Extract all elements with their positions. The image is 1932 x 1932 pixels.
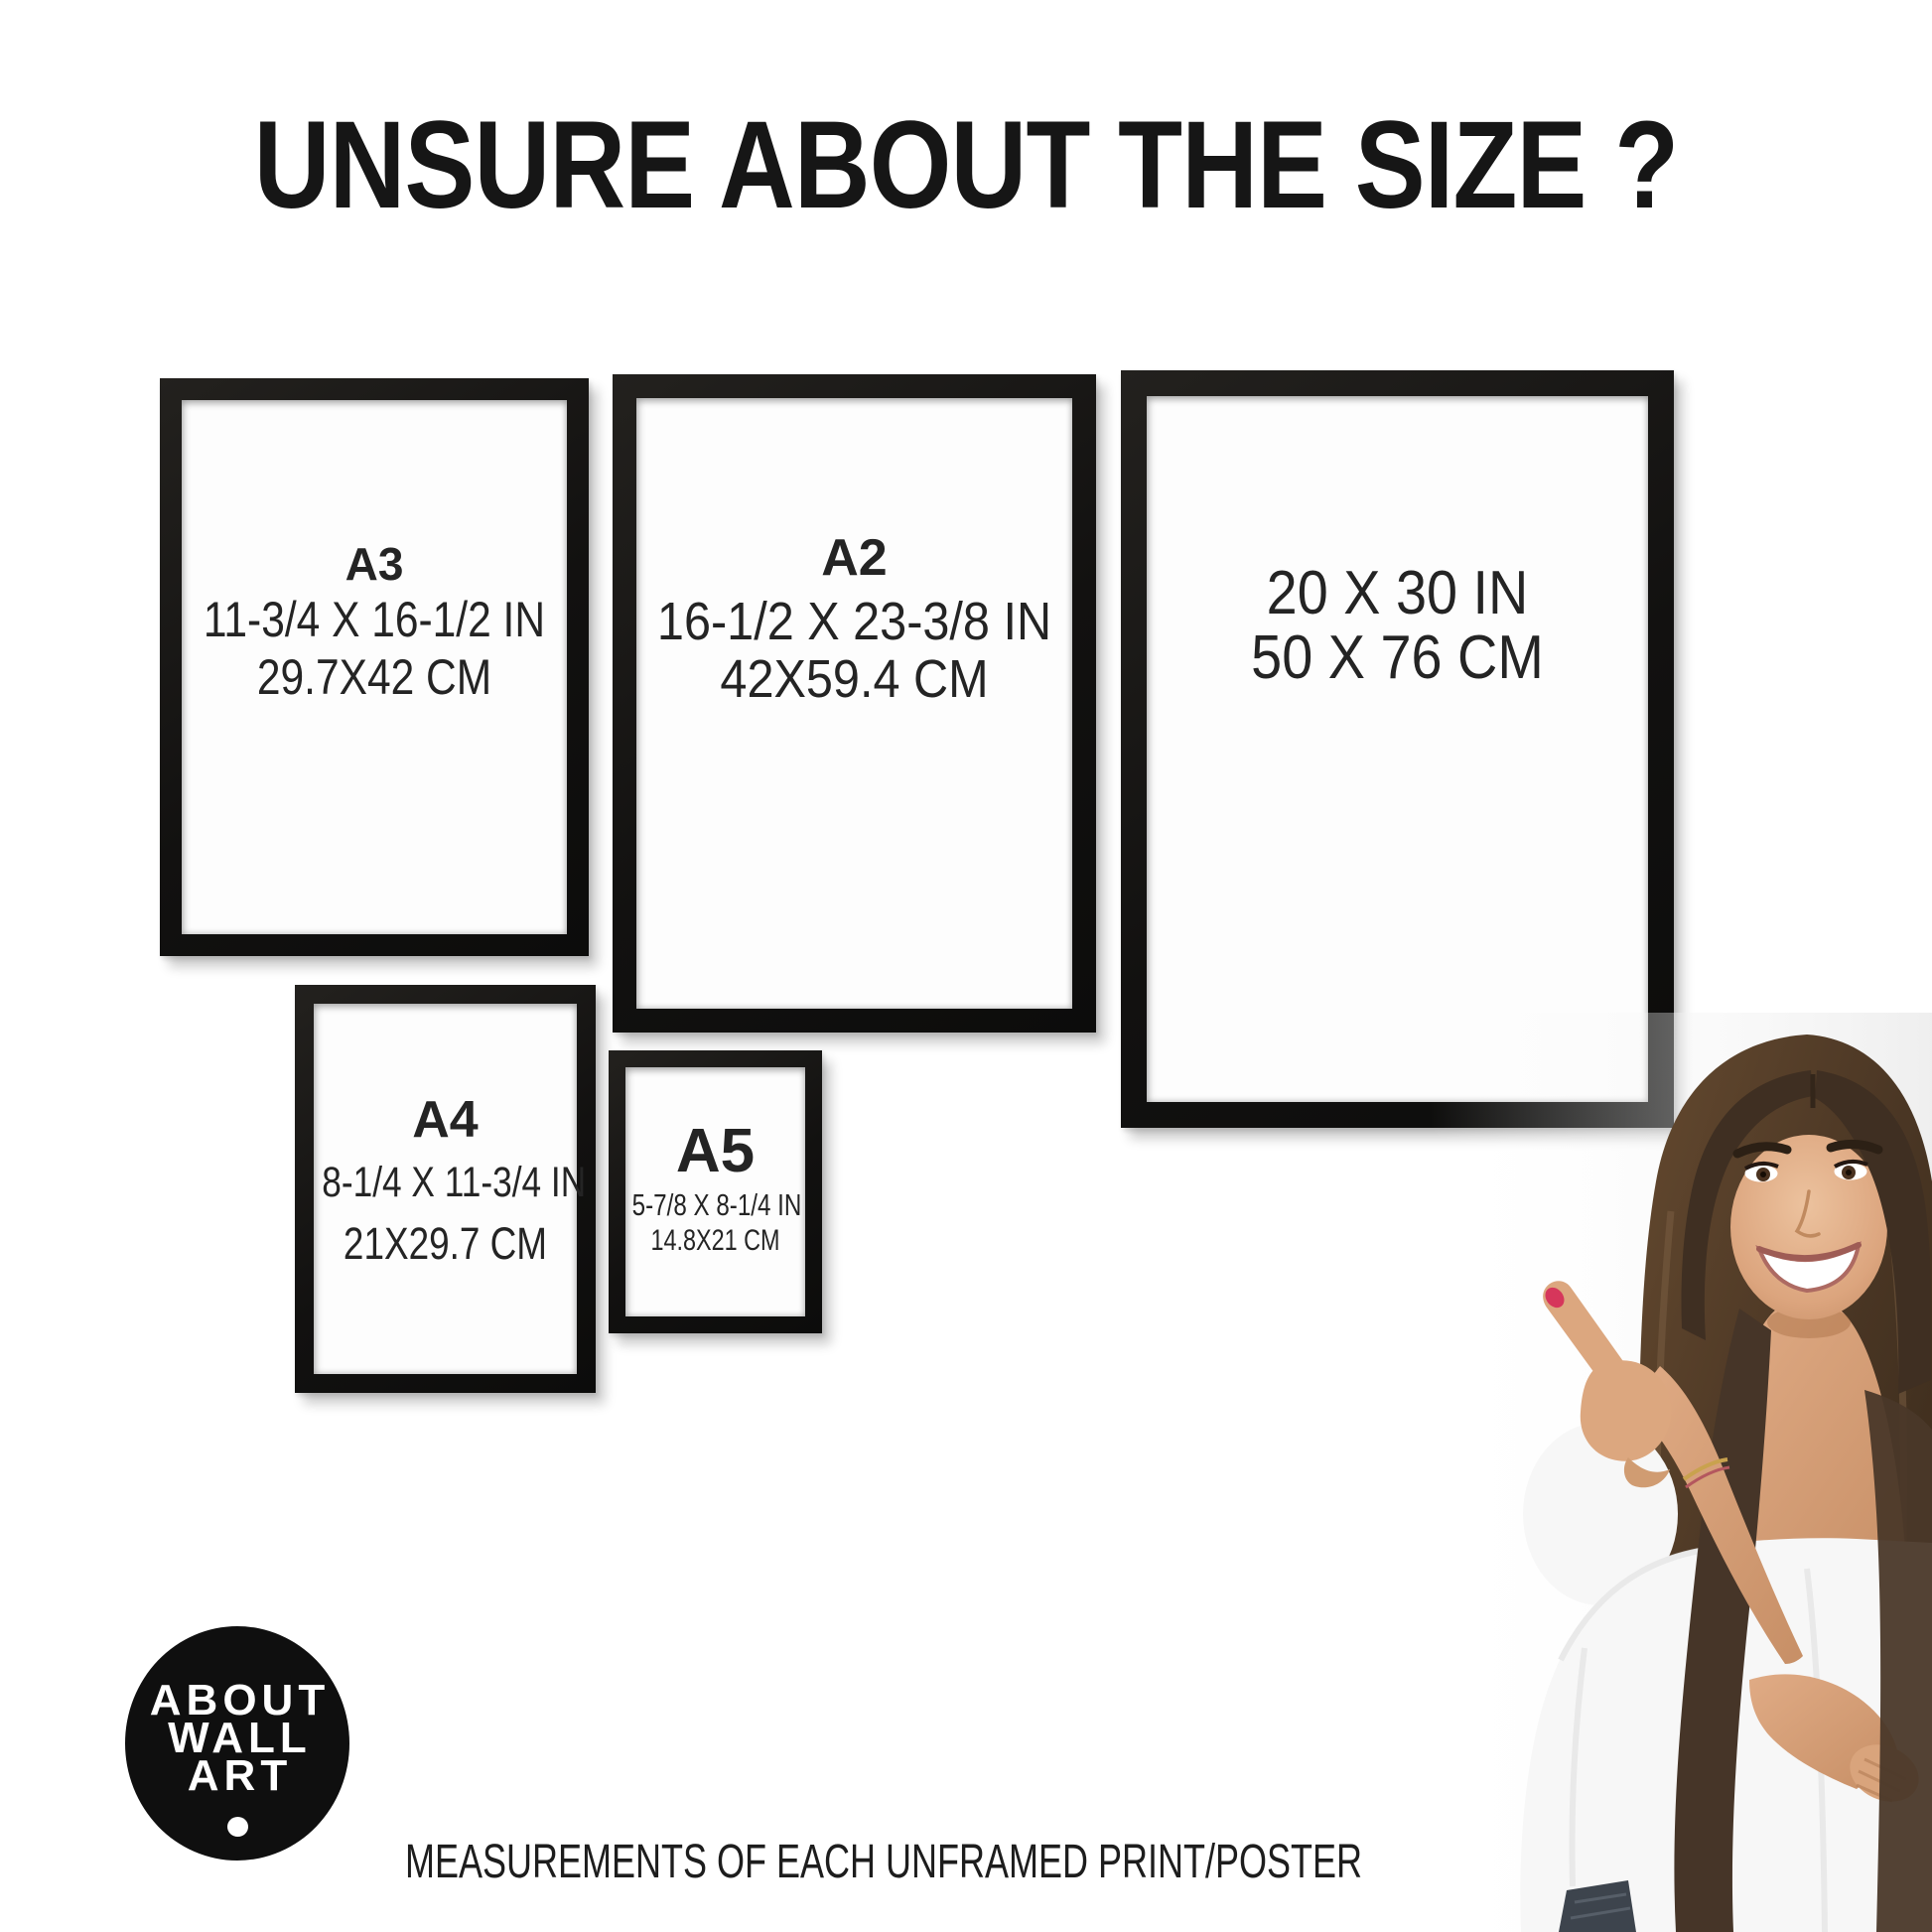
frame-a4-text: A4 8-1/4 X 11-3/4 IN 21X29.7 CM (295, 1088, 596, 1275)
caption: MEASUREMENTS OF EACH UNFRAMED PRINT/POST… (405, 1835, 1362, 1889)
size-cm: 50 X 76 CM (1149, 625, 1646, 690)
frame-20x30-text: 20 X 30 IN 50 X 76 CM (1121, 561, 1674, 690)
size-dimensions: 5-7/8 X 8-1/4 IN 14.8X21 CM (632, 1187, 799, 1259)
size-dimensions: 20 X 30 IN 50 X 76 CM (1149, 561, 1646, 690)
size-cm: 21X29.7 CM (322, 1213, 568, 1275)
frame-a3-text: A3 11-3/4 X 16-1/2 IN 29.7X42 CM (160, 537, 589, 706)
size-inches: 5-7/8 X 8-1/4 IN (632, 1187, 799, 1223)
size-inches: 16-1/2 X 23-3/8 IN (636, 593, 1071, 650)
size-dimensions: 16-1/2 X 23-3/8 IN 42X59.4 CM (636, 593, 1071, 708)
frame-a2-text: A2 16-1/2 X 23-3/8 IN 42X59.4 CM (613, 523, 1096, 708)
size-dimensions: 11-3/4 X 16-1/2 IN 29.7X42 CM (192, 591, 556, 706)
pupil-right (1846, 1170, 1852, 1175)
logo-dot (227, 1817, 248, 1837)
size-label: A3 (160, 537, 589, 591)
logo-line-3: ART (125, 1757, 349, 1795)
size-cm: 14.8X21 CM (632, 1223, 799, 1259)
frame-a2: A2 16-1/2 X 23-3/8 IN 42X59.4 CM (613, 374, 1096, 1033)
frame-20x30-mat (1147, 396, 1648, 1102)
size-guide-infographic: UNSURE ABOUT THE SIZE ? A3 11-3/4 X 16-1… (0, 0, 1932, 1932)
size-cm: 29.7X42 CM (192, 648, 556, 706)
page-title: UNSURE ABOUT THE SIZE ? (145, 97, 1787, 234)
size-label: A5 (609, 1116, 822, 1187)
brand-logo: ABOUT WALL ART (125, 1626, 349, 1861)
size-dimensions: 8-1/4 X 11-3/4 IN 21X29.7 CM (322, 1152, 568, 1275)
size-inches: 8-1/4 X 11-3/4 IN (322, 1152, 568, 1213)
size-label: A2 (613, 523, 1096, 593)
frame-a5: A5 5-7/8 X 8-1/4 IN 14.8X21 CM (609, 1050, 822, 1333)
frame-a5-text: A5 5-7/8 X 8-1/4 IN 14.8X21 CM (609, 1116, 822, 1259)
frame-a4: A4 8-1/4 X 11-3/4 IN 21X29.7 CM (295, 985, 596, 1393)
size-label: A4 (295, 1088, 596, 1152)
model-photo (1390, 1013, 1932, 1932)
frame-a3: A3 11-3/4 X 16-1/2 IN 29.7X42 CM (160, 378, 589, 956)
size-inches: 20 X 30 IN (1149, 561, 1646, 625)
size-cm: 42X59.4 CM (636, 650, 1071, 708)
size-inches: 11-3/4 X 16-1/2 IN (192, 591, 556, 648)
pupil-left (1760, 1172, 1766, 1177)
